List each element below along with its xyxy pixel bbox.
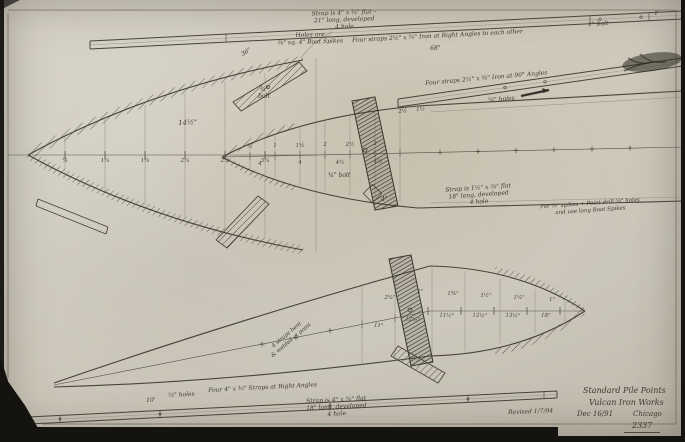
title-company-line2: Vulcan Iron Works — [589, 398, 664, 408]
dim-big-ord-2: 1¾ — [137, 158, 153, 164]
dim-bottom-station-1: 13½" — [505, 313, 521, 320]
dim-mid-upper-4: 2½ — [342, 142, 358, 148]
note-top-bar-bolt: 1" bolt — [588, 20, 609, 28]
dim-bottom-station-0: 18" — [538, 313, 554, 320]
drawing-linework — [0, 0, 685, 442]
note-top-holes: Holes are ⅝" sq. 4" Boat Spikes — [268, 30, 352, 47]
note-top-strap: Strap is 4" x ⅜" flat – 21" long, develo… — [296, 8, 393, 33]
dim-mid-upper-5: 3 — [367, 141, 383, 147]
dim-mid-diamond: 4" — [381, 196, 388, 203]
note-bottom-bar-holes: ⅝" holes — [168, 391, 195, 400]
dim-mid-lower-2: 4½ — [332, 160, 348, 166]
title-company-line1: Standard Pile Points — [583, 386, 666, 396]
dim-bottom-ord-5: 2¼" — [382, 295, 398, 301]
dim-big-ord-4: 2¾ — [217, 158, 233, 164]
dim-bottom-station-2: 12½" — [472, 313, 488, 320]
dim-mid-upper-3: 2 — [317, 142, 333, 148]
dim-bottom-ord-4: 2" — [412, 289, 428, 295]
dim-bottom-ord-2: 1½" — [478, 293, 494, 299]
scan-edge-bottom — [0, 427, 558, 442]
scan-edge-right — [681, 0, 685, 442]
note-bolt-three-quarter: ¾" bolt — [254, 86, 274, 100]
dim-bottom-station-3: 11½" — [439, 313, 455, 320]
dim-big-ord-3: 2¼ — [177, 158, 193, 164]
dim-bar2-end-b: 1½ — [416, 106, 425, 113]
dim-mid-upper-1: 1 — [267, 143, 283, 149]
title-city: Chicago — [633, 410, 662, 418]
dim-bottom-ord-3: 1¾" — [445, 291, 461, 297]
dim-mid-upper-0: ½ — [242, 144, 258, 150]
dim-top-bar-68: 68" — [430, 44, 441, 52]
dim-big-ord-0: ¾ — [57, 158, 73, 164]
dim-mid-lower-3: 4½ — [370, 159, 386, 165]
dim-14-and-half: 14½" — [178, 118, 197, 127]
dim-top-bar-end: 1' — [654, 10, 660, 17]
scanned-pile-points-drawing: Strap is 4" x ⅜" flat – 21" long, develo… — [0, 0, 685, 442]
scan-edge-bottom-right — [558, 436, 685, 442]
bottom-point-assembly — [54, 255, 585, 387]
dim-mid-lower-0: 4 — [252, 161, 268, 167]
dim-bottom-ord-1: 1¼" — [511, 295, 527, 301]
title-drawing-number: 2337 — [624, 421, 660, 433]
dim-mid-upper-2: 1½ — [292, 143, 308, 149]
dim-bar2-end-a: 2½ — [398, 108, 407, 115]
note-mid-bolt: ¾" bolt — [328, 172, 350, 179]
lower-diagonal-strap — [36, 196, 269, 248]
dim-bottom-ord-0: 1" — [544, 297, 560, 303]
title-date: Dec 16/91 — [577, 410, 613, 418]
dim-mid-lower-1: 4 — [292, 160, 308, 166]
sheet-border-lines — [8, 10, 676, 424]
dim-big-ord-1: 1¼ — [97, 158, 113, 164]
dim-bottom-bar-length: 10' — [146, 397, 156, 405]
